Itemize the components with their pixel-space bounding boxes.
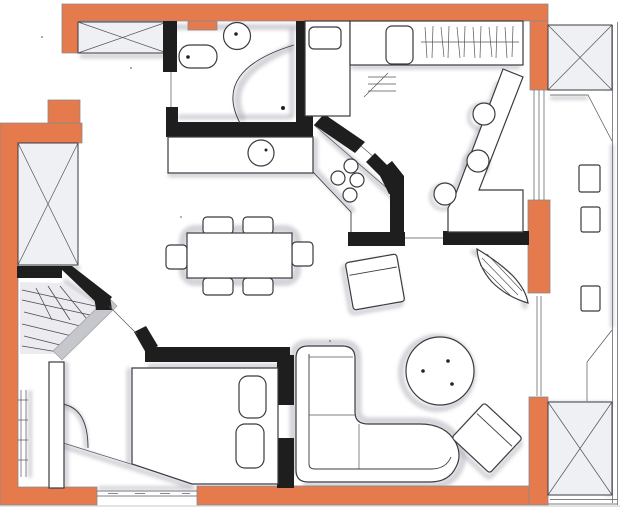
sideboard-bowl <box>248 140 274 166</box>
toilet <box>179 45 217 68</box>
window-bottom-bedroom <box>97 491 197 496</box>
dining-chair <box>166 245 187 269</box>
crossed-panel-top-left <box>78 22 167 53</box>
counter-step-detail <box>364 73 396 97</box>
balcony-inner-edge <box>550 95 612 401</box>
sideboard <box>168 137 313 173</box>
floor-plan-page: Hand-drawn apartment floor plan sketch <box>0 0 620 507</box>
bedroom-north-wall <box>145 347 290 362</box>
dining-chair <box>203 217 233 234</box>
round-washbasin <box>224 23 251 50</box>
round-coffee-table <box>406 337 474 405</box>
left-wall-stub <box>48 100 80 123</box>
dining-table <box>187 233 292 278</box>
planter-box <box>579 165 600 192</box>
counter-sink <box>386 26 413 64</box>
bar-counter <box>448 69 523 232</box>
window-right-upper <box>534 90 544 200</box>
pillow <box>236 424 264 468</box>
bedroom-east-wall-lower <box>277 438 294 488</box>
floor-plan-drawing: Hand-drawn apartment floor plan sketch <box>0 0 620 507</box>
crossed-panel-left <box>18 143 78 265</box>
right-pier-bottom <box>529 397 548 505</box>
tall-cabinet-inset <box>309 27 341 49</box>
kitchen-south-wall-right <box>443 231 529 245</box>
window-left <box>18 390 28 477</box>
dining-chair <box>243 278 273 295</box>
hall-north-wall <box>17 266 62 278</box>
kitchen-east-wall <box>390 188 404 233</box>
planter-box <box>581 286 600 311</box>
bedroom-east-wall-upper <box>277 355 294 405</box>
bar-stool <box>473 103 495 125</box>
floor-drain-dot <box>281 106 285 110</box>
dining-chair <box>203 278 233 295</box>
entry-door-leaf <box>109 306 137 334</box>
right-pier-top <box>530 21 548 90</box>
bar-stool <box>434 183 456 205</box>
crossed-panel-top-right <box>548 25 612 90</box>
cube-armchair <box>345 254 405 310</box>
entry-wall-blob <box>94 296 112 310</box>
bottom-wall-right <box>197 486 529 505</box>
leaf-plant <box>477 249 528 303</box>
bar-stool <box>467 150 489 172</box>
planter-box <box>581 207 600 232</box>
bath-wall-notch <box>188 21 217 30</box>
bathroom-south-wall <box>166 122 313 137</box>
living-room <box>296 249 528 482</box>
corridor-duct <box>49 362 64 488</box>
window-door-right-lower <box>537 296 541 396</box>
dining-chair <box>243 217 273 234</box>
crossed-panel-bottom-right <box>548 402 612 495</box>
bathroom-west-wall <box>163 21 177 72</box>
bedroom <box>132 368 278 484</box>
kitchen-south-wall-left <box>348 232 405 246</box>
dining-chair <box>292 242 313 266</box>
pillow <box>239 376 266 418</box>
bathroom-west-wall-stub <box>166 107 178 124</box>
right-pier-mid <box>528 200 550 293</box>
